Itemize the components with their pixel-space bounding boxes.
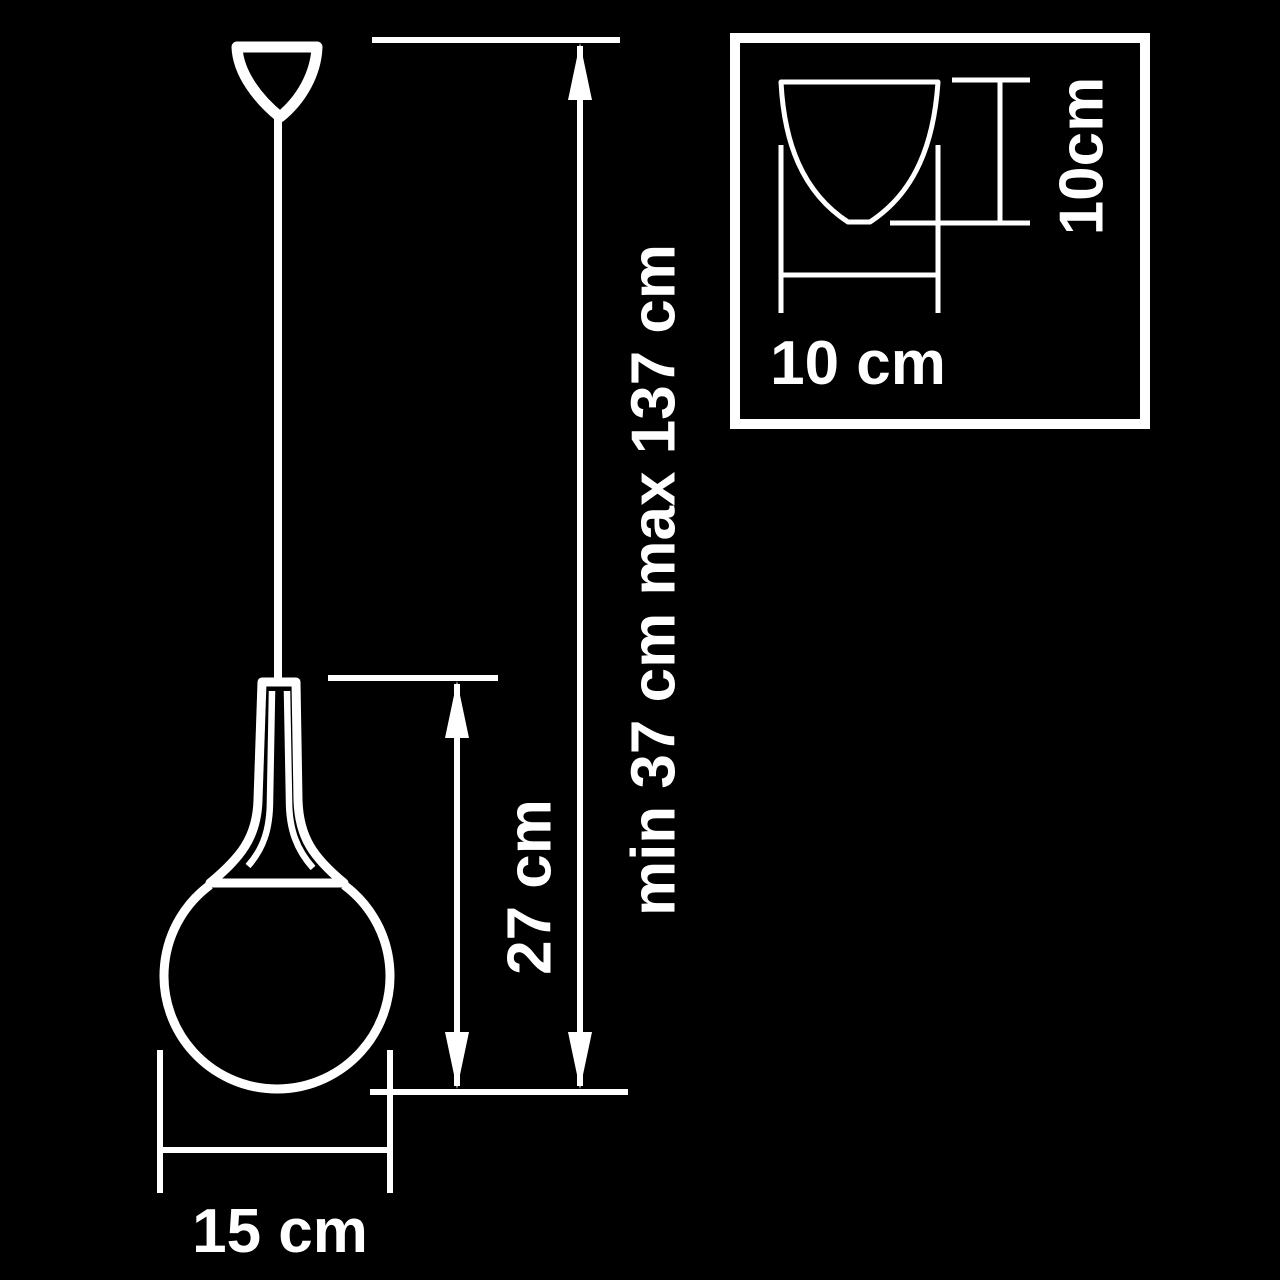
shade-height-label: 27 cm	[496, 799, 565, 975]
canopy-width-label: 10 cm	[770, 329, 946, 398]
total-height-label: min 37 cm max 137 cm	[620, 244, 689, 916]
dimension-diagram-canvas: min 37 cm max 137 cm 27 cm 15 cm	[0, 0, 1280, 1280]
pendant-lamp-dimension-diagram: min 37 cm max 137 cm 27 cm 15 cm	[0, 0, 1280, 1280]
shade-diameter-label: 15 cm	[192, 1197, 368, 1266]
canopy-height-label: 10cm	[1048, 77, 1117, 236]
